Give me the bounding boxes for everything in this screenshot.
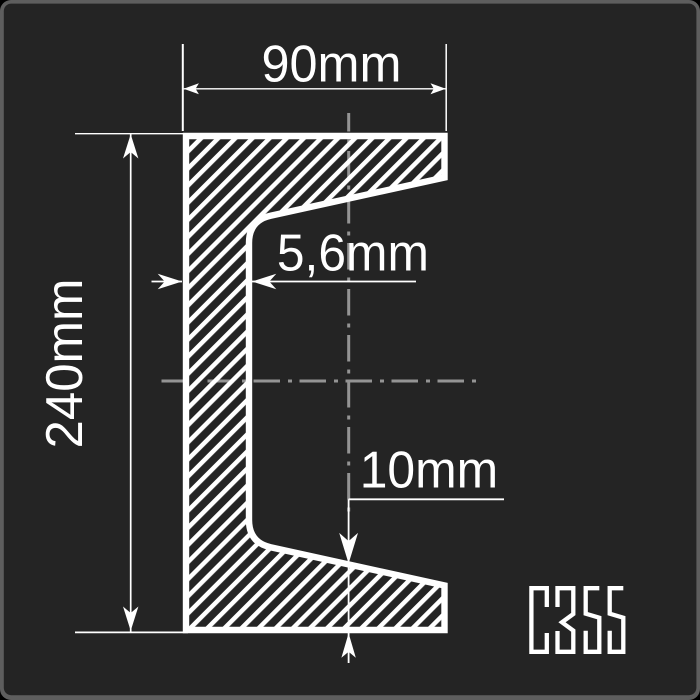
svg-text:10mm: 10mm [360,441,499,499]
svg-text:240mm: 240mm [36,279,94,449]
svg-text:5,6mm: 5,6mm [277,224,429,282]
svg-text:90mm: 90mm [262,35,402,93]
